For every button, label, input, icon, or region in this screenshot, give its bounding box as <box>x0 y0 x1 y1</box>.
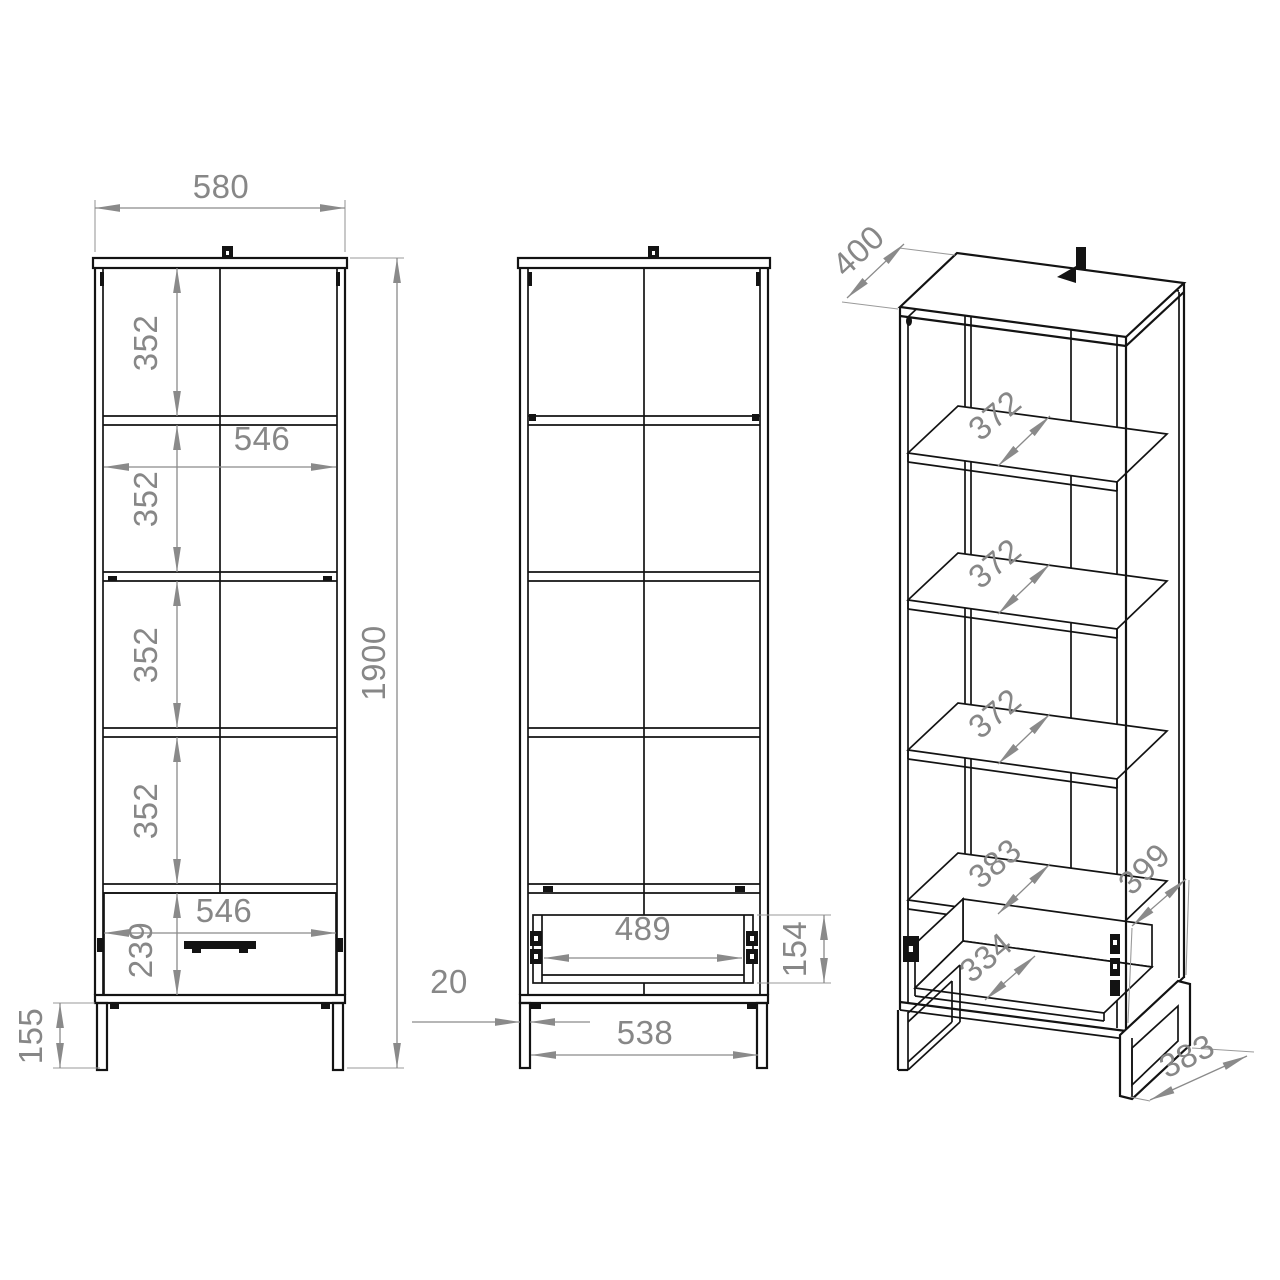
dim-front-inner-width: 546 <box>234 420 291 457</box>
drawing-svg: 580 1900 352 352 352 352 546 546 239 155 <box>0 0 1280 1280</box>
dim-front-gap3: 352 <box>127 627 164 684</box>
dim-front-drawer-front: 239 <box>122 922 159 979</box>
iso-wall-mount-clip <box>1076 247 1086 269</box>
dim-front-gap2: 352 <box>127 471 164 528</box>
dim-back-leg-span: 538 <box>617 1014 674 1051</box>
dim-back-drawer-height: 154 <box>776 921 813 978</box>
dim-front-gap4: 352 <box>127 783 164 840</box>
dim-front-width: 580 <box>193 168 250 205</box>
drawer-handle <box>184 941 256 949</box>
dim-front-height: 1900 <box>355 625 392 700</box>
dim-back-leg-thickness: 20 <box>430 963 468 1000</box>
dim-back-drawer-inner-width: 489 <box>615 910 672 947</box>
dim-front-gap1: 352 <box>127 315 164 372</box>
dim-front-drawer-width: 546 <box>196 892 253 929</box>
technical-drawing: 580 1900 352 352 352 352 546 546 239 155 <box>0 0 1280 1280</box>
iso-cam-dowel <box>906 316 912 326</box>
dim-front-leg-height: 155 <box>12 1008 49 1065</box>
